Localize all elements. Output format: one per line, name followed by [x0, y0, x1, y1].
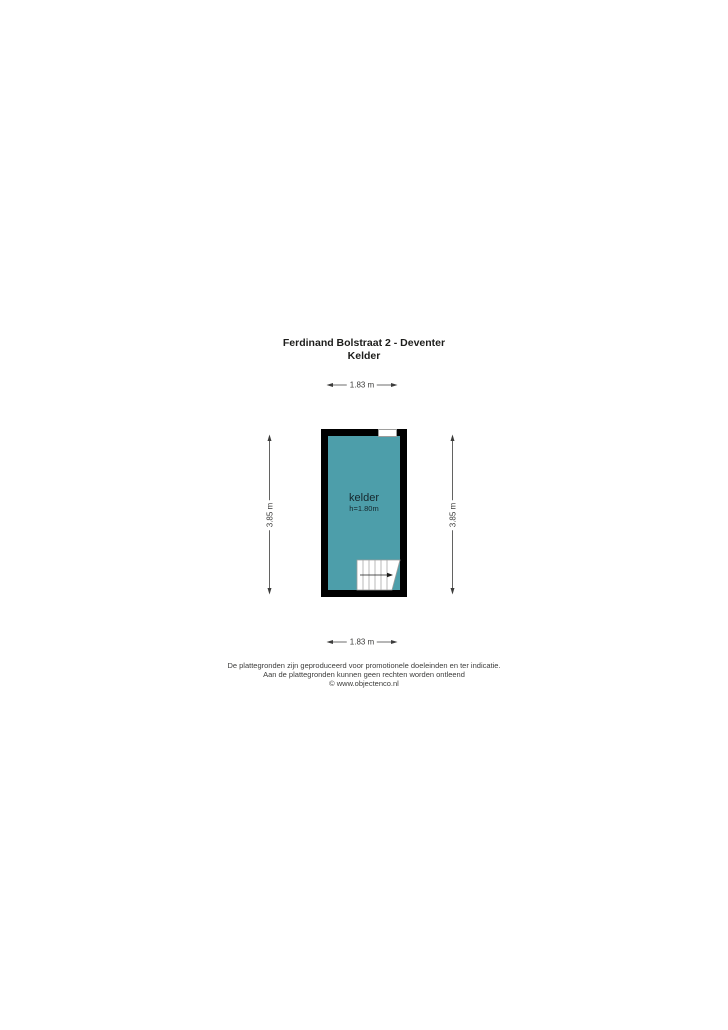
page-title: Ferdinand Bolstraat 2 - Deventer Kelder — [0, 337, 728, 363]
copyright-line: © www.objectenco.nl — [0, 679, 728, 688]
title-floor: Kelder — [0, 350, 728, 363]
dimension-bottom-label: 1.83 m — [347, 638, 377, 647]
dimension-left-label: 3.85 m — [265, 499, 274, 529]
dimension-left: 3.85 m — [263, 434, 276, 595]
disclaimer-line-2: Aan de plattegronden kunnen geen rechten… — [0, 670, 728, 679]
dimension-right-label: 3.85 m — [448, 499, 457, 529]
floorplan-drawing — [321, 429, 407, 597]
window — [379, 430, 397, 437]
dimension-bottom: 1.83 m — [326, 636, 398, 648]
room-name: kelder — [328, 492, 400, 504]
title-address: Ferdinand Bolstraat 2 - Deventer — [0, 337, 728, 350]
dimension-right: 3.85 m — [446, 434, 459, 595]
room-label: kelder h=1.80m — [328, 492, 400, 513]
dimension-top-label: 1.83 m — [347, 381, 377, 390]
floorplan-page: Ferdinand Bolstraat 2 - Deventer Kelder … — [0, 0, 728, 1030]
room-ceiling-height: h=1.80m — [328, 504, 400, 513]
dimension-top: 1.83 m — [326, 379, 398, 391]
staircase — [357, 560, 400, 590]
disclaimer-line-1: De plattegronden zijn geproduceerd voor … — [0, 661, 728, 670]
footer-disclaimer: De plattegronden zijn geproduceerd voor … — [0, 661, 728, 688]
